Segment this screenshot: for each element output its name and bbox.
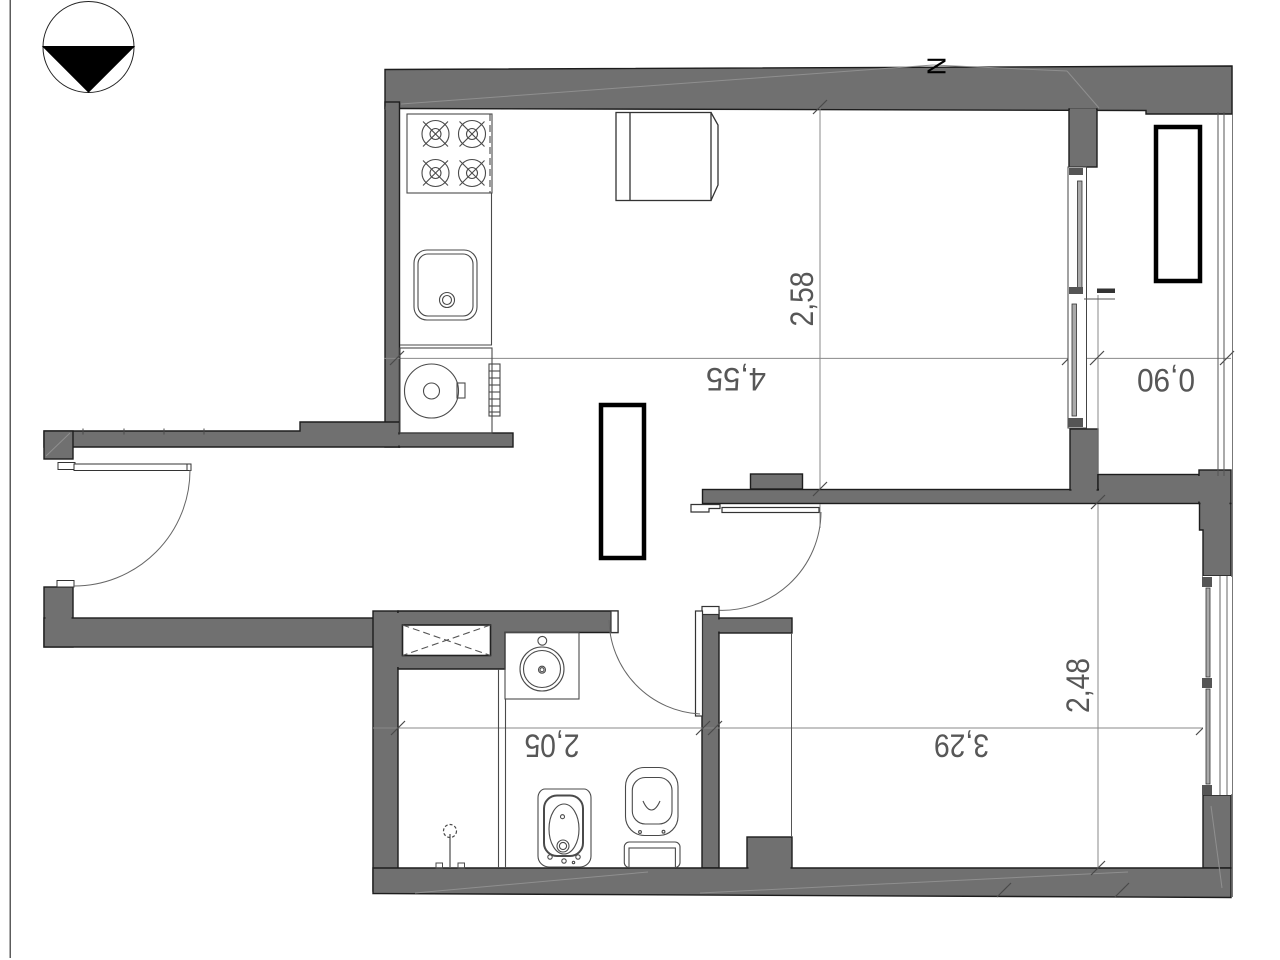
- svg-text:2,58: 2,58: [784, 272, 820, 327]
- svg-text:4,55: 4,55: [706, 361, 766, 397]
- svg-text:N: N: [922, 57, 952, 76]
- svg-text:3,29: 3,29: [934, 728, 989, 764]
- svg-text:2,48: 2,48: [1060, 658, 1096, 713]
- svg-text:2,05: 2,05: [525, 728, 580, 764]
- svg-text:0,90: 0,90: [1137, 362, 1195, 398]
